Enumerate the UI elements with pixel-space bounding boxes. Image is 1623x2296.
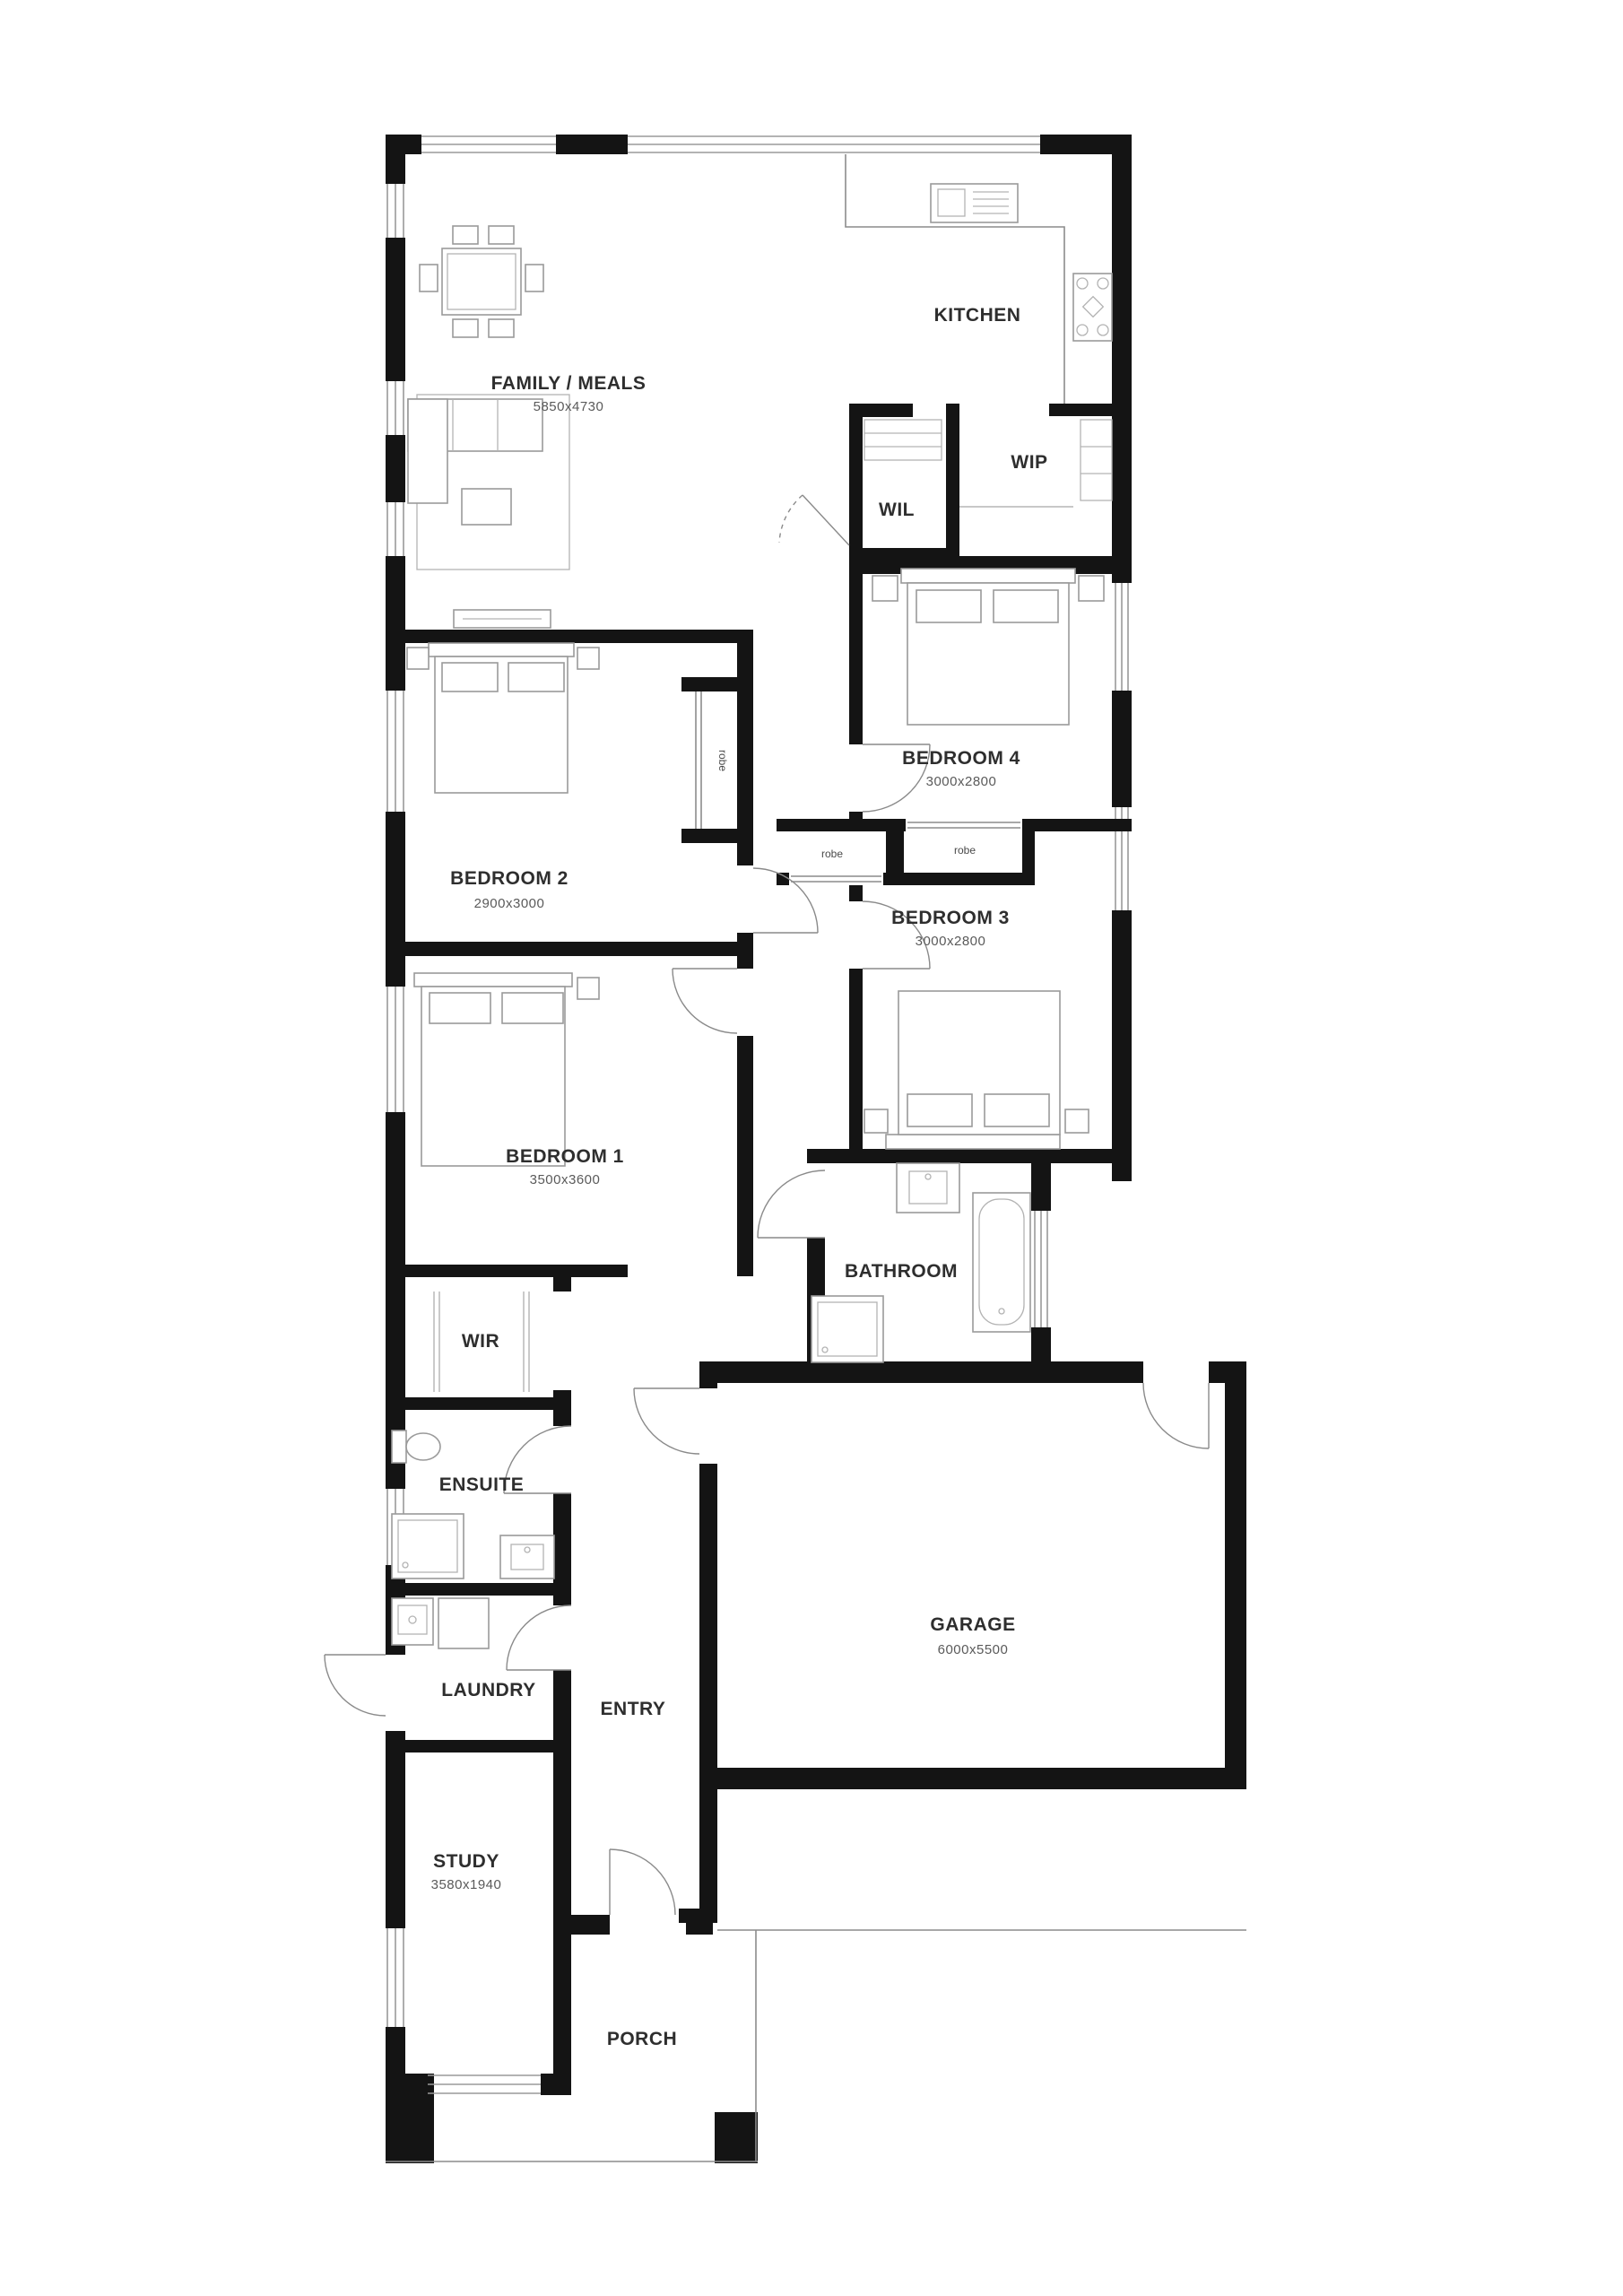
wir-label: WIR: [462, 1331, 499, 1352]
robe-bed2-sliding-icon: [696, 691, 701, 829]
garage-label: GARAGE: [930, 1614, 1015, 1635]
bathroom-label: BATHROOM: [845, 1261, 958, 1282]
window-top-family-icon: [421, 136, 556, 152]
robe-right-label: robe: [954, 844, 976, 857]
bedroom2-label: BEDROOM 2: [450, 868, 568, 889]
porch-label: PORCH: [607, 2029, 677, 2049]
bathroom-door-icon: [758, 1170, 825, 1238]
bedroom2-dims: 2900x3000: [474, 896, 545, 911]
bedroom3-dims: 3000x2800: [916, 934, 986, 949]
window-family-2-icon: [387, 381, 404, 435]
entry-label: ENTRY: [601, 1699, 666, 1719]
robe-left-sliding-icon: [791, 876, 881, 882]
ensuite-toilet-icon: [392, 1431, 440, 1463]
laundry-washer-icon: [438, 1598, 489, 1648]
bathtub-icon: [973, 1193, 1030, 1332]
garage-door-icon: [634, 1388, 699, 1454]
window-family-3-icon: [387, 502, 404, 556]
bedroom1-dims: 3500x3600: [530, 1172, 601, 1187]
wil-shelf-icon: [864, 420, 942, 460]
cooktop-icon: [1073, 274, 1112, 341]
bathroom-shower-icon: [811, 1296, 883, 1362]
bed1-icon: [414, 973, 599, 1166]
kitchen-label: KITCHEN: [934, 305, 1021, 326]
ensuite-shower-icon: [392, 1514, 464, 1578]
study-label: STUDY: [433, 1851, 499, 1872]
laundry-label: LAUNDRY: [441, 1680, 535, 1700]
window-bedroom2-icon: [387, 691, 404, 812]
study-dims: 3580x1940: [431, 1877, 502, 1892]
entry-door-icon: [610, 1849, 675, 1915]
bed2-icon: [407, 643, 599, 793]
garage-external-door-icon: [1143, 1383, 1209, 1448]
laundry-trough-icon: [392, 1598, 433, 1645]
wil-label: WIL: [879, 500, 915, 520]
tv-unit-icon: [454, 610, 551, 628]
kitchen-bench-icon: [846, 154, 1064, 404]
bed4-icon: [872, 569, 1104, 725]
window-study-front-icon: [428, 2075, 541, 2093]
window-bedroom1-icon: [387, 987, 404, 1112]
robe-bed2-label: robe: [716, 750, 729, 771]
bedroom4-label: BEDROOM 4: [902, 748, 1020, 769]
laundry-door-icon: [507, 1605, 571, 1670]
window-study-side-icon: [387, 1928, 404, 2027]
bedroom4-dims: 3000x2800: [926, 774, 997, 789]
bedroom1-label: BEDROOM 1: [506, 1146, 624, 1167]
floor-plan: FAMILY / MEALS 5850x4730 KITCHEN WIP WIL…: [0, 0, 1623, 2296]
ensuite-label: ENSUITE: [439, 1474, 525, 1495]
ensuite-vanity-icon: [500, 1535, 554, 1578]
bathroom-vanity-icon: [897, 1163, 959, 1213]
garage-dims: 6000x5500: [938, 1642, 1009, 1657]
bedroom1-door-icon: [673, 969, 737, 1033]
window-bathroom-icon: [1035, 1211, 1047, 1327]
robe-right-sliding-icon: [907, 822, 1020, 828]
dining-table-icon: [420, 226, 543, 337]
family-label: FAMILY / MEALS: [491, 373, 647, 394]
bed3-icon: [864, 991, 1089, 1149]
robe-left-label: robe: [821, 848, 843, 860]
laundry-external-door-icon: [325, 1655, 386, 1716]
family-dims: 5850x4730: [534, 399, 604, 414]
wip-label: WIP: [1011, 452, 1047, 473]
sofa-icon: [408, 395, 569, 570]
window-top-meals-icon: [628, 136, 904, 152]
slab-lines: [386, 1930, 1246, 2161]
window-family-1-icon: [387, 184, 404, 238]
floor-plan-page: FAMILY / MEALS 5850x4730 KITCHEN WIP WIL…: [0, 0, 1623, 2296]
bedroom3-label: BEDROOM 3: [891, 908, 1010, 928]
wil-door-icon: [779, 495, 849, 545]
window-bedroom4-icon: [1115, 583, 1128, 691]
window-kitchen-icon: [904, 136, 1040, 152]
